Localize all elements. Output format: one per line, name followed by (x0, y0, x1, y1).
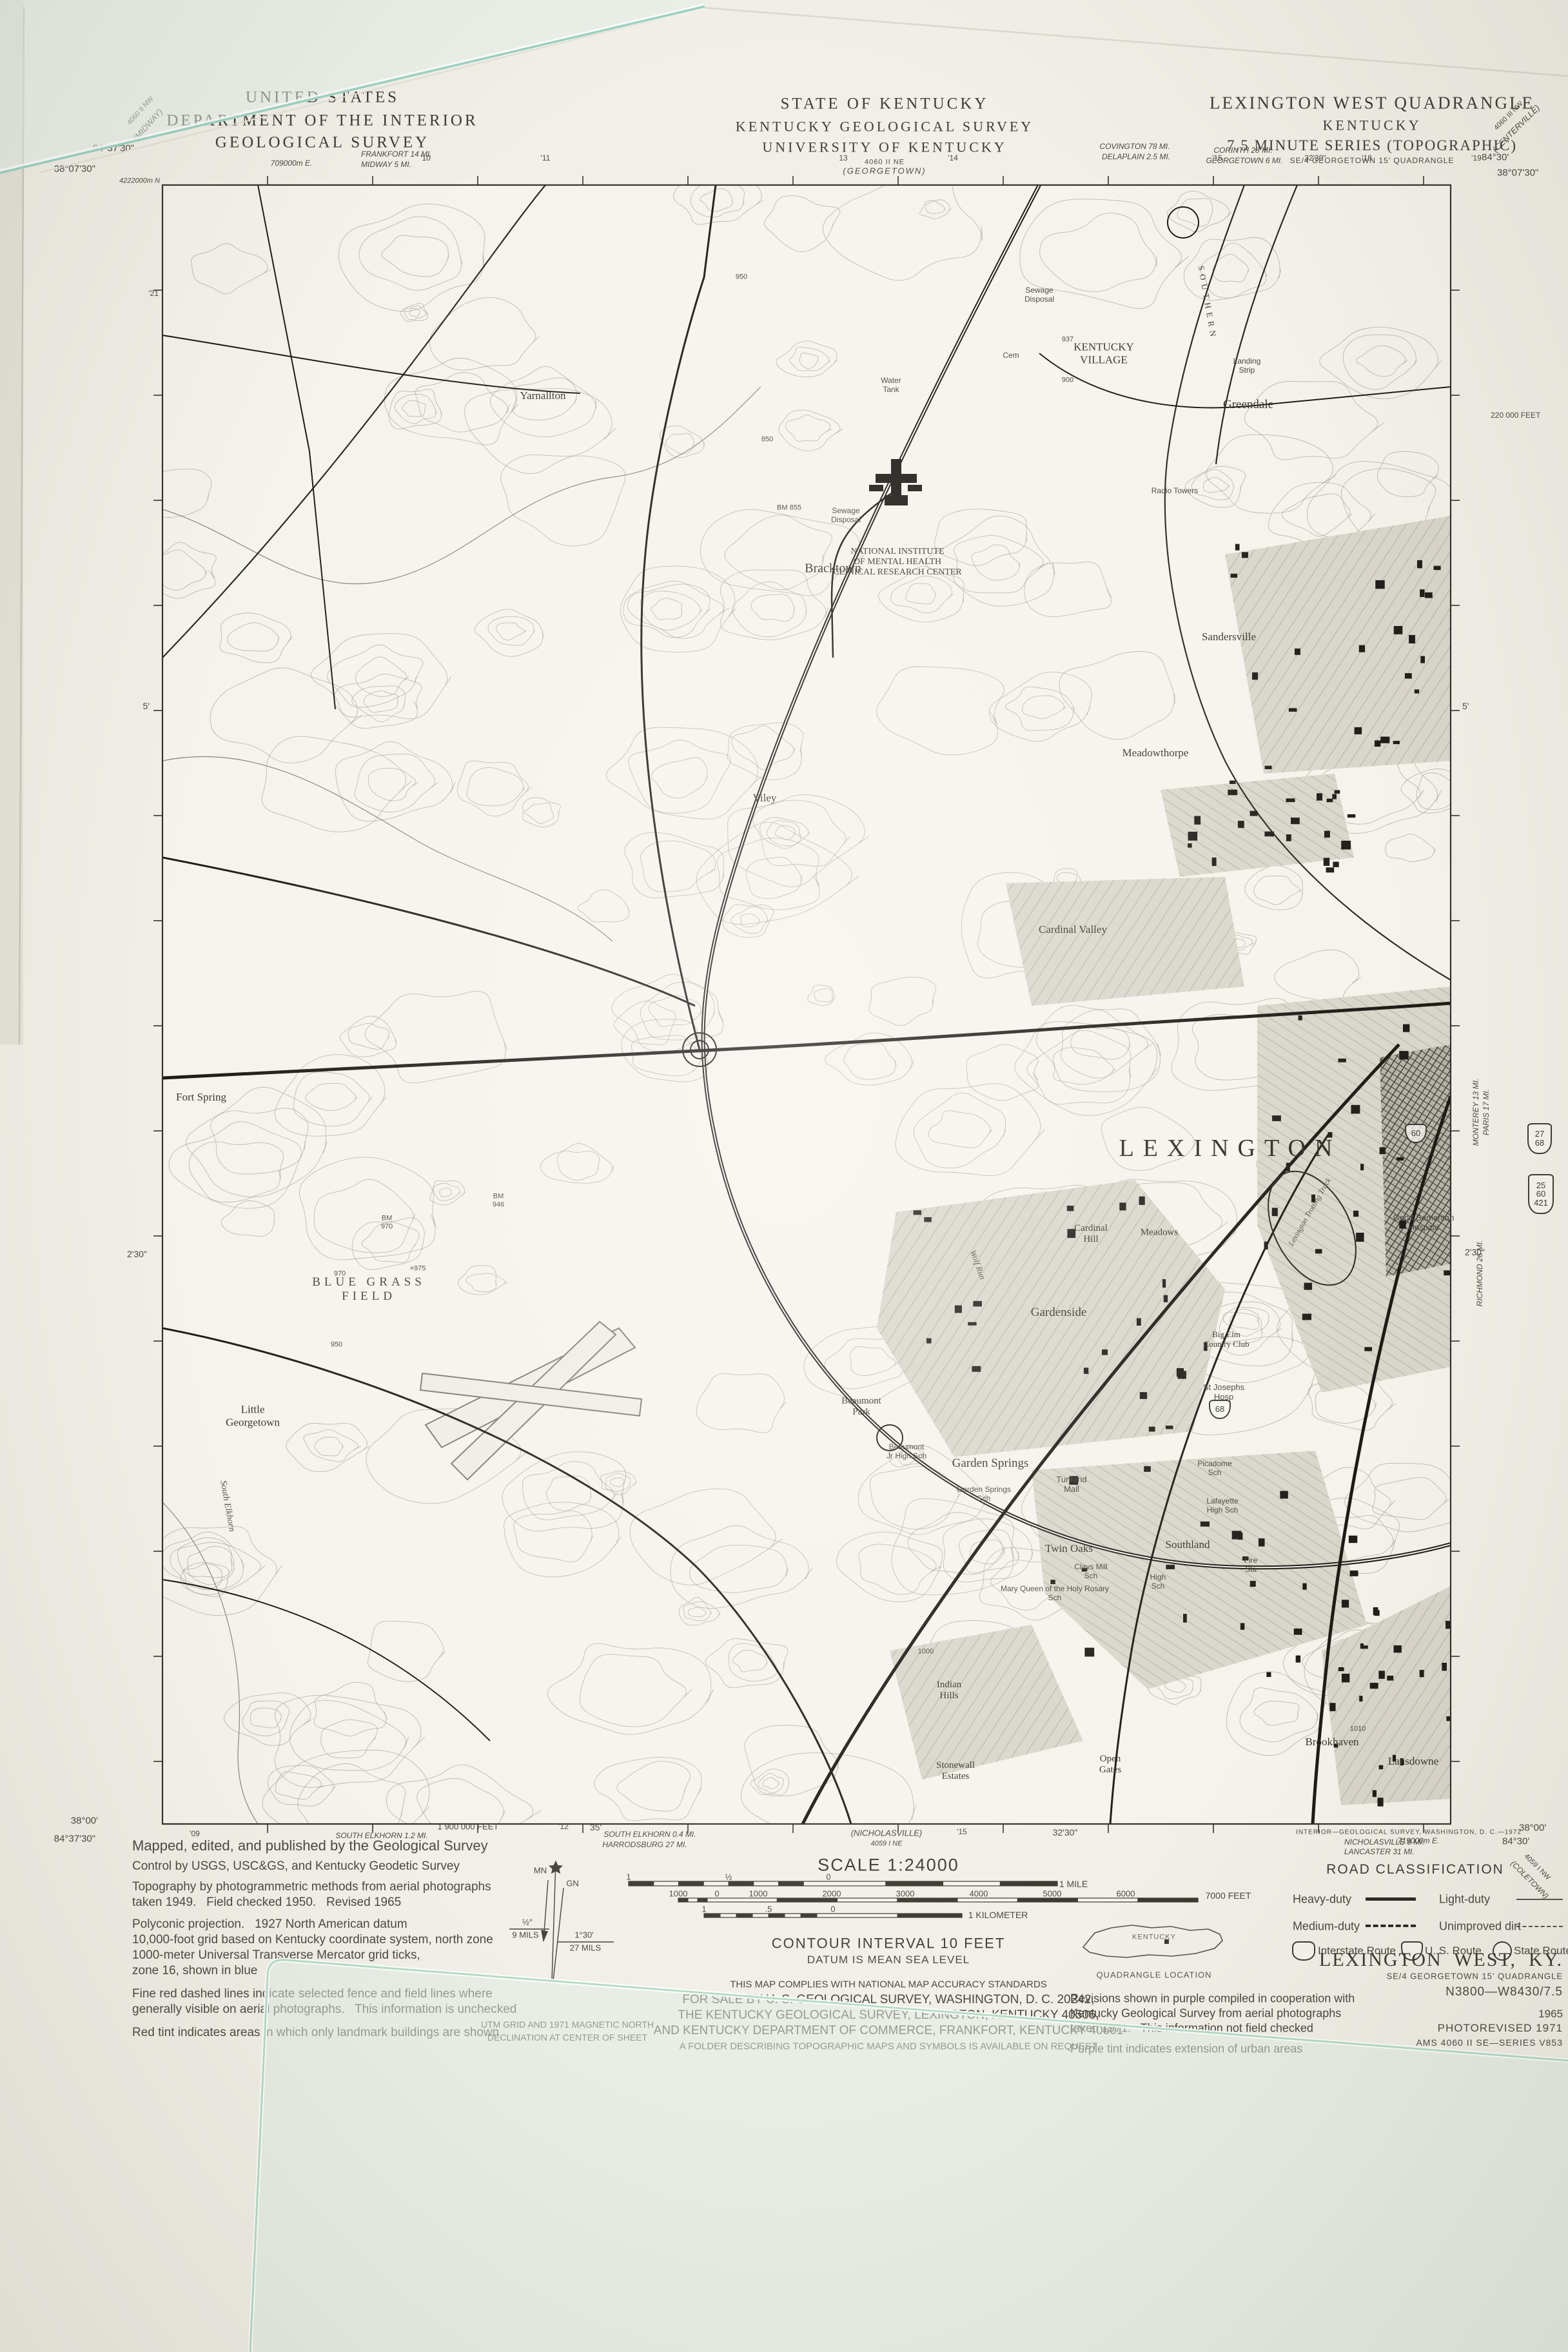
revision-line-0: Revisions shown in purple compiled in co… (1070, 1992, 1355, 2006)
feet-num-7: 6000 (1117, 1890, 1135, 1899)
margin-b_t12: '12 (558, 1823, 569, 1832)
usgs-header-line1: UNITED STATES (246, 89, 399, 108)
declination-9mils: 9 MILS (512, 1931, 538, 1941)
map-label-lafayette: Lafayette High Sch (1206, 1497, 1238, 1515)
top-tick-2: 13 (839, 154, 847, 163)
map-label-sandersville: Sandersville (1202, 631, 1256, 643)
credit-line-6: 1000-meter Universal Transverse Mercator… (132, 1948, 420, 1963)
feet-num-1: 0 (714, 1890, 719, 1899)
declination-130: 1°30' (574, 1931, 593, 1941)
margin-b_t09: '09 (190, 1830, 200, 1839)
sheet-subtitle: SE/4 GEORGETOWN 15' QUADRANGLE (1386, 1972, 1563, 1982)
mile-num-2: 0 (826, 1873, 830, 1883)
scale-feet-end: 7000 FEET (1206, 1890, 1251, 1901)
map-label-twinoaks: Twin Oaks (1045, 1542, 1093, 1555)
quad-title-line2: KENTUCKY (1323, 117, 1422, 133)
light-duty-symbol (1516, 1899, 1563, 1900)
quad-location-caption: QUADRANGLE LOCATION (1096, 1971, 1211, 1981)
map-label-stonewall: Stonewall Estates (936, 1760, 975, 1783)
margin-ne_lon: 84°30' (1482, 152, 1509, 162)
feet-num-0: 1000 (669, 1890, 688, 1899)
sheet-fragment-0: U (6, 245, 13, 255)
margin-south_elkhorn12: SOUTH ELKHORN 1.2 MI. (335, 1832, 427, 1841)
scale-title: SCALE 1:24000 (818, 1855, 959, 1875)
map-label-kyvillage: KENTUCKY VILLAGE (1073, 340, 1134, 366)
map-label-beaumontjr: Beaumont Jr High Sch (887, 1443, 926, 1461)
sheet-photorevised: PHOTOREVISED 1971 (1438, 2022, 1563, 2035)
map-label-gardensprings: Garden Springs (952, 1456, 1029, 1471)
map-label-meadows: Meadows (1141, 1227, 1178, 1238)
top-tick-3: '14 (948, 154, 958, 163)
contour-interval-note: CONTOUR INTERVAL 10 FEET (772, 1935, 1006, 1951)
declination-caption1: UTM GRID AND 1971 MAGNETIC NORTH (481, 2019, 654, 2030)
map-label-maryqueen: Mary Queen of the Holy Rosary Sch (1001, 1585, 1109, 1603)
map-label-bluegrass: BLUE GRASS FIELD (312, 1275, 426, 1304)
top-tick-5: 32'30" (1304, 154, 1326, 163)
declination-27mils: 27 MILS (570, 1944, 601, 1954)
sale-line-2: THE KENTUCKY GEOLOGICAL SURVEY, LEXINGTO… (678, 2008, 1099, 2023)
map-label-sewage2: Sewage Disposal (831, 507, 861, 525)
us-25-60-421-margin-shield: 2560421 (1528, 1174, 1554, 1214)
top-tick-0: '10 (420, 154, 431, 163)
margin-left_5: 5' (143, 701, 150, 711)
sheet-fragment-2: O (6, 271, 14, 281)
feet-num-5: 4000 (970, 1890, 988, 1899)
map-label-bm946: BM 946 (493, 1192, 504, 1208)
declination-caption2: DECLINATION AT CENTER OF SHEET (487, 2032, 647, 2043)
margin-b_3230: 32'30" (1053, 1827, 1078, 1837)
map-label-watertank: Water Tank (881, 377, 901, 395)
margin-midway: MIDWAY 5 MI. (361, 161, 411, 170)
map-label-meadowthorpe: Meadowthorpe (1122, 747, 1189, 759)
sheet-title: LEXINGTON WEST, KY. (1319, 1949, 1563, 1972)
sale-line-4: A FOLDER DESCRIBING TOPOGRAPHIC MAPS AND… (680, 2041, 1097, 2052)
map-label-firesta: Fire Sta (1244, 1556, 1258, 1574)
map-label-bm937: 937 (1062, 336, 1073, 344)
margin-b_t15: '15 (957, 1828, 967, 1837)
adjacent-quad-number-top: 4060 II NE (865, 159, 905, 167)
map-label-radio: Radio Towers (1151, 487, 1198, 496)
map-label-lansdowne: Lansdowne (1388, 1755, 1438, 1768)
feet-num-2: 1000 (749, 1890, 768, 1899)
photographed-topo-map-sheet: { "header": { "left": ["UNITED STATES","… (0, 0, 1568, 2352)
usgs-header-line2: DEPARTMENT OF THE INTERIOR (166, 112, 478, 131)
sale-line-1: FOR SALE BY U. S. GEOLOGICAL SURVEY, WAS… (682, 1993, 1094, 2007)
map-label-lexington: LEXINGTON (1119, 1135, 1342, 1163)
map-label-bm970: BM 970 (381, 1214, 393, 1230)
sheet-year: 1965 (1538, 2008, 1563, 2021)
margin-se_lat: 38°00' (1519, 1822, 1546, 1833)
credit-line-3: taken 1949. Field checked 1950. Revised … (132, 1896, 401, 1910)
quad-title-line1: LEXINGTON WEST QUADRANGLE (1210, 93, 1534, 113)
credit-line-0: Mapped, edited, and published by the Geo… (132, 1837, 488, 1854)
credit-line-5: 10,000-foot grid based on Kentucky coord… (132, 1933, 493, 1947)
map-label-yarnallton: Yarnallton (520, 389, 566, 402)
map-label-x975: ×975 (410, 1265, 426, 1273)
gn-label: GN (566, 1879, 579, 1889)
map-label-southland: Southland (1166, 1538, 1210, 1551)
map-label-c970: 970 (334, 1270, 346, 1279)
map-label-nimh: NATIONAL INSTITUTE OF MENTAL HEALTH CLIN… (833, 547, 961, 578)
sheet-fragment-1: MI (6, 258, 17, 268)
margin-nw_lon: 84°37'30" (93, 142, 134, 153)
state-header-line2: KENTUCKY GEOLOGICAL SURVEY (736, 118, 1034, 134)
sheet-code: N3800—W8430/7.5 (1445, 1985, 1563, 1999)
datum-note: DATUM IS MEAN SEA LEVEL (807, 1954, 970, 1966)
heavy-duty-symbol (1366, 1897, 1416, 1901)
top-tick-1: '11 (541, 154, 551, 163)
map-label-beaumontpark: Beaumont Park (841, 1396, 881, 1418)
margin-harrodsburg: HARRODSBURG 27 MI. (602, 1841, 687, 1850)
road-class-light-label: Light-duty (1439, 1893, 1490, 1906)
feet-num-3: 2000 (823, 1890, 841, 1899)
map-label-claysmill: Clays Mill Sch (1074, 1563, 1107, 1581)
credit-line-8: Fine red dashed lines indicate selected … (132, 1987, 493, 2001)
map-label-goodsam: Good Samaritan Hospital (1393, 1213, 1455, 1233)
map-label-greendale: Greendale (1223, 398, 1273, 412)
map-label-fortspring: Fort Spring (176, 1091, 226, 1104)
margin-interior_credit: INTERIOR—GEOLOGICAL SURVEY, WASHINGTON, … (1296, 1828, 1522, 1836)
road-class-heavy-label: Heavy-duty (1293, 1893, 1351, 1906)
map-label-landing: Landing Strip (1233, 357, 1261, 375)
margin-right_5: 5' (1462, 701, 1469, 711)
map-label-bm855: BM 855 (777, 504, 801, 513)
map-label-sewage1: Sewage Disposal (1024, 286, 1054, 304)
margin-utm_easting: 709000m E. (271, 159, 313, 168)
margin-se_lon: 84°30' (1502, 1836, 1529, 1847)
top-tick-6: '18 (1362, 154, 1372, 163)
map-label-gssch: Garden Springs Sch (957, 1485, 1011, 1504)
map-label-picadome: Picadome Sch (1197, 1460, 1231, 1478)
margin-covington: COVINGTON 78 MI. (1099, 142, 1170, 152)
revision-line-2: taken 1971. This information not field c… (1070, 2022, 1313, 2035)
margin-lancaster: LANCASTER 31 MI. (1344, 1848, 1415, 1857)
map-label-c850: 850 (761, 436, 773, 444)
margin-left_utm_north: 4222000m N (119, 177, 160, 186)
map-label-opengates: Open Gates (1099, 1754, 1121, 1776)
map-label-littlegeorgetown: Little Georgetown (226, 1403, 280, 1428)
state-header-line3: UNIVERSITY OF KENTUCKY (762, 139, 1006, 155)
revision-line-3: Purple tint indicates extension of urban… (1070, 2043, 1302, 2056)
margin-richmond: RICHMOND 26 MI. (1476, 1240, 1485, 1307)
margin-nw_lat: 38°07'30" (54, 163, 95, 174)
margin-feet1900: 1 900 000 FEET (438, 1823, 499, 1832)
margin-nicholasville_quad_num: 4059 I NE (871, 1840, 903, 1848)
feet-num-4: 3000 (896, 1890, 915, 1899)
credit-line-10: Red tint indicates areas in which only l… (132, 2026, 499, 2040)
km-num-2: 0 (830, 1905, 835, 1915)
margin-paris: PARIS 17 MI. (1482, 1089, 1491, 1135)
margin-sw_lat: 38°00' (71, 1815, 98, 1826)
sheet-ams-series: AMS 4060 II SE—SERIES V853 (1416, 2037, 1563, 2048)
km-num-0: 1 (701, 1905, 706, 1915)
credit-line-1: Control by USGS, USC&GS, and Kentucky Ge… (132, 1859, 460, 1874)
road-class-medium-label: Medium-duty (1293, 1920, 1360, 1934)
mile-num-0: 1 (626, 1873, 631, 1883)
sale-line-3: AND KENTUCKY DEPARTMENT OF COMMERCE, FRA… (654, 2024, 1123, 2038)
margin-south_elkhorn04: SOUTH ELKHORN 0.4 MI. (603, 1830, 696, 1839)
margin-b_35: 35' (590, 1822, 602, 1832)
sale-line-0: THIS MAP COMPLIES WITH NATIONAL MAP ACCU… (730, 1979, 1046, 1990)
map-label-c900: 900 (1062, 377, 1073, 385)
margin-nicholasville_quad: (NICHOLASVILLE) (851, 1829, 923, 1839)
map-label-cem: Cem (1003, 351, 1019, 360)
km-num-1: .5 (765, 1905, 772, 1915)
quad-location-state-label: KENTUCKY (1132, 1934, 1176, 1942)
margin-delaplain: DELAPLAIN 2.5 MI. (1102, 153, 1170, 162)
map-label-viley: Viley (753, 792, 777, 805)
top-tick-4: '15 (1212, 154, 1222, 163)
revision-line-1: Kentucky Geological Survey from aerial p… (1070, 2007, 1341, 2021)
map-label-indianhills: Indian Hills (937, 1680, 961, 1702)
credit-line-4: Polyconic projection. 1927 North America… (132, 1917, 407, 1932)
margin-left_230: 2'30" (127, 1249, 147, 1259)
top-tick-7: '19 (1471, 154, 1482, 163)
margin-ne_lat: 38°07'30" (1497, 167, 1538, 178)
adjacent-quad-name-top: (GEORGETOWN) (843, 167, 926, 177)
map-label-cardinalvalley: Cardinal Valley (1039, 923, 1107, 936)
margin-monterey: MONTEREY 13 MI. (1472, 1079, 1481, 1146)
unimproved-dirt-symbol (1516, 1926, 1563, 1927)
margin-right_feet: 220 000 FEET (1491, 411, 1540, 420)
scale-bars (629, 1881, 1198, 1917)
downtown-dense-block (1380, 1044, 1451, 1277)
map-label-cardinalhill: Cardinal Hill (1074, 1223, 1108, 1246)
map-label-gardenside: Gardenside (1031, 1306, 1087, 1320)
road-class-dirt-label: Unimproved dirt (1439, 1920, 1521, 1934)
margin-sw_lon: 84°37'30" (54, 1833, 95, 1844)
scale-km-end: 1 KILOMETER (968, 1910, 1028, 1920)
margin-utm719: 719000m E. (1398, 1837, 1440, 1846)
map-label-bigelm: Big Elm Country Club (1203, 1330, 1249, 1349)
mile-num-1: ½ (725, 1873, 732, 1883)
feet-num-6: 5000 (1043, 1890, 1062, 1899)
declination-half-degree: ½° (522, 1918, 533, 1928)
interstate-shield-icon (1292, 1941, 1315, 1961)
credit-line-2: Topography by photogrammetric methods fr… (132, 1880, 491, 1894)
medium-duty-symbol (1366, 1925, 1416, 1927)
mn-label: MN (534, 1867, 547, 1876)
map-label-c1000: 1000 (918, 1648, 934, 1656)
scale-mile-end: 1 MILE (1059, 1879, 1088, 1889)
map-label-c950: 950 (736, 273, 747, 282)
state-header-line1: STATE OF KENTUCKY (781, 95, 989, 114)
map-label-turfland: Turfland Mall (1056, 1475, 1086, 1494)
map-label-c950b: 950 (331, 1341, 342, 1349)
road-classification-title: ROAD CLASSIFICATION (1326, 1862, 1504, 1877)
credit-line-7: zone 16, shown in blue (132, 1964, 257, 1978)
map-label-highsch: High Sch (1150, 1573, 1166, 1591)
us-27-68-margin-shield: 2768 (1527, 1123, 1552, 1154)
map-label-brookhaven: Brookhaven (1305, 1736, 1358, 1749)
margin-left_t21: '21 (148, 289, 159, 299)
map-label-c1010: 1010 (1350, 1725, 1366, 1734)
credit-line-9: generally visible on aerial photographs.… (132, 2003, 516, 2017)
